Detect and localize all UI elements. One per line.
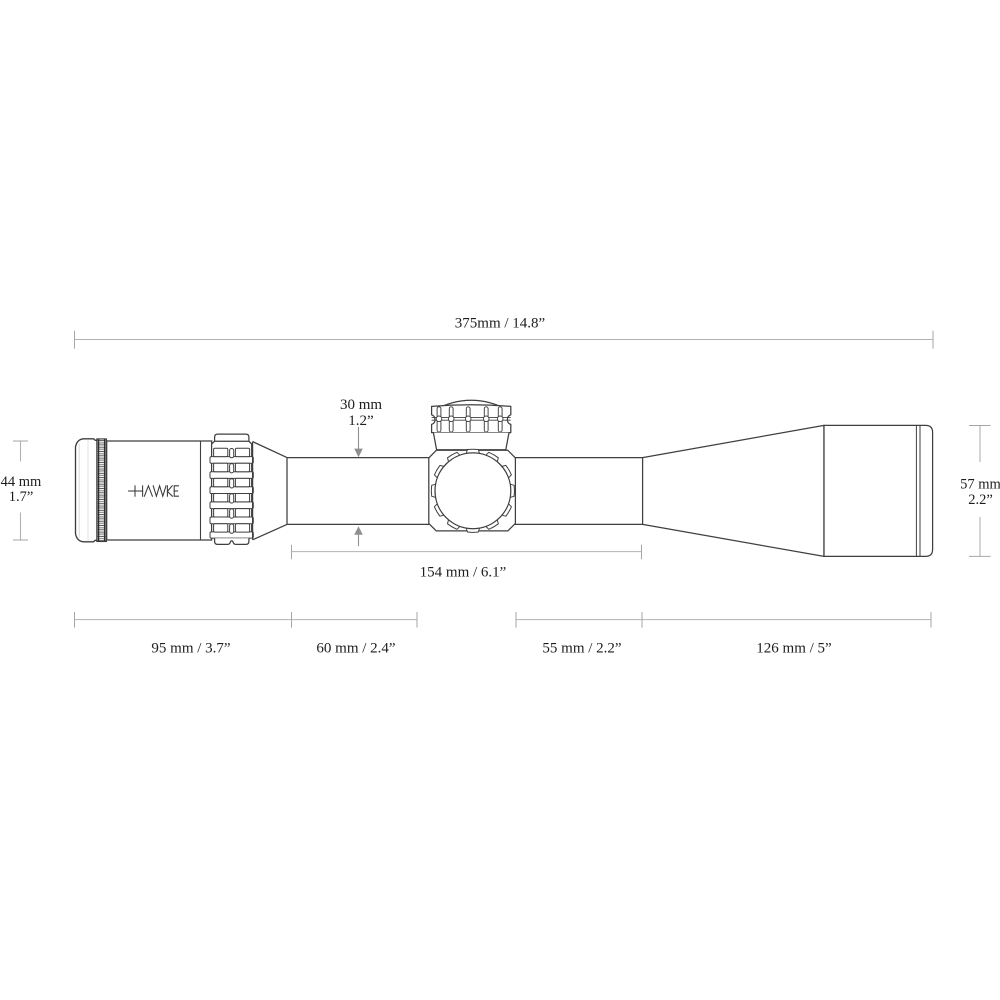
svg-text:55 mm / 2.2”: 55 mm / 2.2” [542, 640, 621, 656]
svg-text:126 mm / 5”: 126 mm / 5” [756, 640, 831, 656]
svg-text:375mm / 14.8”: 375mm / 14.8” [455, 316, 545, 332]
svg-text:44 mm: 44 mm [1, 474, 42, 490]
svg-text:95 mm / 3.7”: 95 mm / 3.7” [151, 640, 230, 656]
svg-text:1.7”: 1.7” [9, 489, 34, 505]
svg-text:154 mm / 6.1”: 154 mm / 6.1” [420, 565, 507, 581]
svg-text:30 mm: 30 mm [340, 397, 382, 413]
svg-text:2.2”: 2.2” [968, 492, 993, 508]
svg-text:1.2”: 1.2” [348, 413, 373, 429]
svg-text:60 mm / 2.4”: 60 mm / 2.4” [316, 640, 395, 656]
svg-text:57 mm: 57 mm [960, 477, 1000, 493]
